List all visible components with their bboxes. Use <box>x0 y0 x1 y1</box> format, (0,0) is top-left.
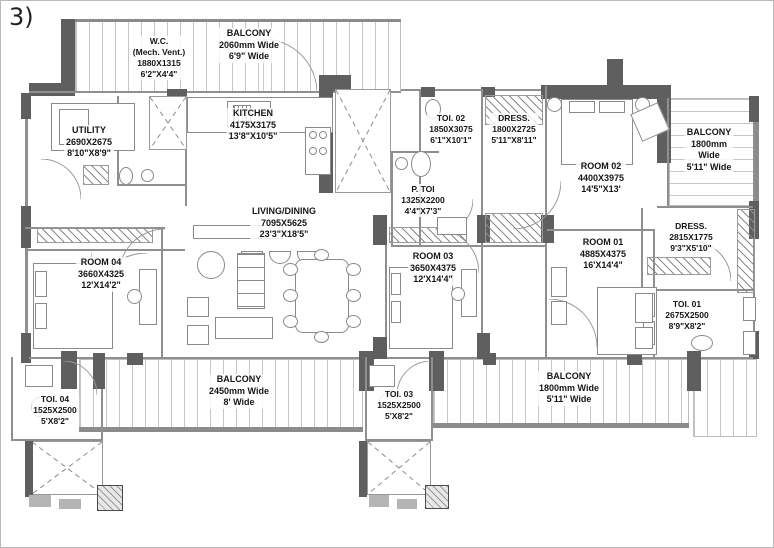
pillow-icon <box>391 273 401 295</box>
burner-icon <box>309 131 317 139</box>
room-label-utility: UTILITY 2690X2675 8'10"X8'9" <box>64 125 114 160</box>
room-label-wc: W.C. (Mech. Vent.) 1880X1315 6'2"X4'4" <box>131 36 187 80</box>
room-label-room04: ROOM 04 3660X4325 12'X14'2" <box>76 257 126 292</box>
toilet-fixture-icon <box>437 217 467 235</box>
cabinet-icon <box>551 301 567 325</box>
dining-chair-icon <box>314 249 329 261</box>
burner-icon <box>309 147 317 155</box>
partition <box>667 98 669 206</box>
shelf-unit-icon <box>237 253 265 309</box>
chair-icon <box>451 287 465 301</box>
room-label-ptoi: P. TOI 1325X2200 4'4"X7'3" <box>399 184 447 217</box>
partition <box>641 208 643 290</box>
dining-chair-icon <box>346 289 361 302</box>
washbasin-icon <box>395 157 408 170</box>
armchair-icon <box>187 325 209 345</box>
pillow-icon <box>35 271 47 297</box>
footing-block <box>397 499 417 509</box>
room-label-balcony-bottom-left: BALCONY 2450mm Wide 8' Wide <box>207 374 271 409</box>
cabinet-icon <box>551 267 567 297</box>
wall <box>25 441 33 497</box>
dining-chair-icon <box>283 289 298 302</box>
shaft-below-toi03-icon <box>367 441 431 495</box>
balcony-bottom-left-railing <box>79 427 363 432</box>
burner-icon <box>319 147 327 155</box>
pillow-icon <box>391 301 401 323</box>
partition <box>11 357 13 441</box>
partition <box>547 229 655 231</box>
footing-block <box>29 495 51 507</box>
armchair-icon <box>187 297 209 317</box>
cabinet-icon <box>743 297 756 321</box>
wall <box>373 337 387 359</box>
wall <box>607 59 623 87</box>
wall <box>359 441 367 497</box>
bar-stool-icon <box>269 251 291 264</box>
shower-tray-icon <box>635 293 653 323</box>
dining-chair-icon <box>346 263 361 276</box>
cabinet-icon <box>635 327 653 349</box>
room-label-dress02: DRESS. 1800X2725 5'11"X8'11" <box>489 113 538 146</box>
room-label-toi02: TOI. 02 1850X3075 6'1"X10'1" <box>427 113 475 146</box>
burner-icon <box>319 131 327 139</box>
dining-chair-icon <box>346 315 361 328</box>
pillow-icon <box>599 101 625 113</box>
duct-shaft-icon <box>335 89 391 193</box>
room-label-balcony-top: BALCONY 2060mm Wide 6'9" Wide <box>217 28 281 63</box>
room-label-toi04: TOI. 04 1525X2500 5'X8'2" <box>31 394 79 427</box>
shower-icon <box>149 96 187 150</box>
room-label-toi03: TOI. 03 1525X2500 5'X8'2" <box>375 389 423 422</box>
cabinet-icon <box>743 331 756 355</box>
wardrobe-icon <box>737 209 755 293</box>
dining-chair-icon <box>283 315 298 328</box>
shaft-below-toi04-icon <box>31 441 103 495</box>
side-table-icon <box>547 97 562 112</box>
wall <box>421 87 435 97</box>
toilet-icon <box>691 335 713 351</box>
chair-icon <box>127 289 142 304</box>
drying-rack-icon <box>83 165 109 185</box>
wall <box>29 83 75 96</box>
partition <box>545 231 547 359</box>
figure-label: 3) <box>9 3 34 31</box>
door-arc <box>513 181 561 229</box>
wall <box>687 351 701 391</box>
door-arc <box>63 361 97 395</box>
pillow-icon <box>35 303 47 329</box>
dining-chair-icon <box>283 263 298 276</box>
dining-chair-icon <box>314 331 329 343</box>
room-label-room02: ROOM 02 4400X3975 14'5"X13' <box>576 161 626 196</box>
room-label-balcony-right: BALCONY 1800mm Wide 5'11" Wide <box>685 127 734 174</box>
wall <box>127 353 143 365</box>
partition <box>431 357 433 441</box>
washbasin-counter-icon <box>369 365 395 387</box>
wall <box>373 215 387 245</box>
wall <box>21 93 31 119</box>
partition <box>365 357 367 441</box>
sofa-icon <box>215 317 273 339</box>
column-footing <box>97 485 123 511</box>
toilet-icon <box>411 151 431 177</box>
column-footing <box>425 485 449 509</box>
wall <box>477 333 490 359</box>
room-label-toi01: TOI. 01 2675X2500 8'9"X8'2" <box>663 299 711 332</box>
washbasin-icon <box>141 169 154 182</box>
pillow-icon <box>569 101 595 113</box>
partition <box>657 206 753 208</box>
room-label-balcony-bottom-right: BALCONY 1800mm Wide 5'11" Wide <box>537 371 601 406</box>
dining-table-icon <box>295 259 349 333</box>
room-label-room01: ROOM 01 4885X4375 16'X14'4" <box>578 237 628 272</box>
round-table-icon <box>197 251 225 279</box>
washbasin-counter-icon <box>25 365 53 387</box>
wall <box>749 96 759 122</box>
room-label-living: LIVING/DINING 7095X5625 23'3"X18'5" <box>250 206 318 241</box>
balcony-bottom-right-railing <box>433 423 689 428</box>
floor-plan: 3) <box>0 0 774 548</box>
toilet-icon <box>119 167 133 185</box>
balcony-corner-area <box>693 359 757 437</box>
footing-block <box>59 499 81 509</box>
room-label-room03: ROOM 03 3650X4375 12'X14'4" <box>408 251 458 286</box>
door-arc <box>41 159 81 199</box>
room-label-dress01: DRESS. 2815X1775 9'3"X5'10" <box>667 221 715 254</box>
wall <box>541 85 671 99</box>
balcony-top-railing <box>75 19 401 22</box>
room-label-kitchen: KITCHEN 4175X3175 13'8"X10'5" <box>227 108 280 143</box>
footing-block <box>369 495 389 507</box>
